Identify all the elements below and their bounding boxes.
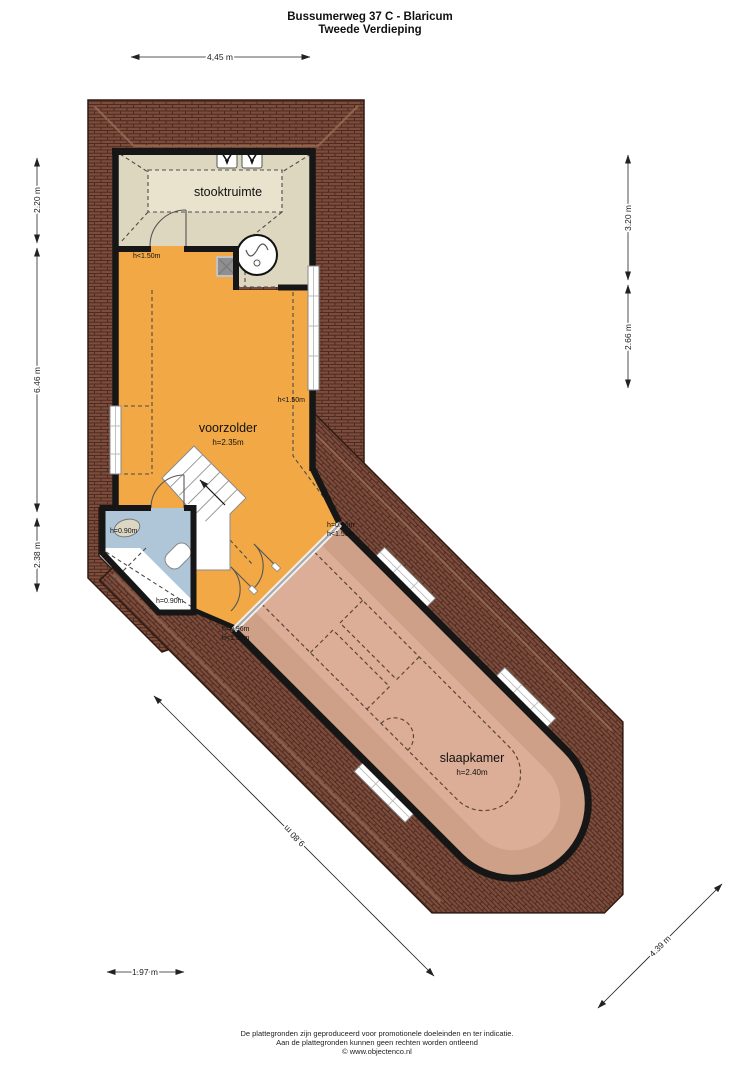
- footer-disclaimer-2: Aan de plattegronden kunnen geen rechten…: [276, 1038, 478, 1047]
- dimension-left-lower: 2.38 m: [32, 518, 42, 592]
- svg-text:9.80 m: 9.80 m: [281, 823, 306, 848]
- floorplan-svg: Bussumerweg 37 C - Blaricum Tweede Verdi…: [0, 0, 754, 1066]
- slaapkamer-height: h=2.40m: [456, 768, 488, 777]
- svg-text:1.97 m: 1.97 m: [132, 967, 158, 977]
- height-label: h=0.96m: [222, 626, 250, 633]
- svg-text:3.20 m: 3.20 m: [623, 205, 633, 231]
- boiler-icon: [237, 235, 277, 275]
- svg-text:4.39 m: 4.39 m: [647, 933, 672, 958]
- dimension-top: 4,45 m: [131, 52, 310, 62]
- skylight-window: [308, 266, 319, 390]
- voorzolder-label: voorzolder: [199, 421, 257, 435]
- dimension-left-middle: 6.46 m: [32, 248, 42, 512]
- height-label: h=0.90m: [110, 528, 138, 535]
- height-label: h=0.96m: [327, 522, 355, 529]
- dimension-bottom-left: 1.97 m: [107, 967, 184, 977]
- height-label: h<1.50m: [278, 397, 306, 404]
- svg-text:2.38 m: 2.38 m: [32, 542, 42, 568]
- skylight-window: [110, 406, 121, 474]
- svg-text:2.20 m: 2.20 m: [32, 187, 42, 213]
- svg-text:6.46 m: 6.46 m: [32, 367, 42, 393]
- footer-disclaimer-1: De plattegronden zijn geproduceerd voor …: [240, 1029, 513, 1038]
- svg-text:2.66 m: 2.66 m: [623, 324, 633, 350]
- slaapkamer-label: slaapkamer: [440, 751, 505, 765]
- height-label: h<1.50m: [327, 531, 355, 538]
- height-label: h=0.90m: [156, 598, 184, 605]
- dimension-diagonal-short: 4.39 m: [598, 884, 722, 1008]
- svg-text:4,45 m: 4,45 m: [207, 52, 233, 62]
- voorzolder-height: h=2.35m: [212, 438, 244, 447]
- dimension-right-upper: 3.20 m: [623, 155, 633, 280]
- footer-copyright: © www.objectenco.nl: [342, 1047, 412, 1056]
- height-label: h<1.50m: [133, 253, 161, 260]
- page-title: Bussumerweg 37 C - Blaricum: [287, 11, 453, 23]
- dimension-right-middle: 2.66 m: [623, 285, 633, 388]
- stookruimte-label: stooktruimte: [194, 185, 262, 199]
- floorplan-page: Bussumerweg 37 C - Blaricum Tweede Verdi…: [0, 0, 754, 1066]
- page-subtitle: Tweede Verdieping: [318, 24, 421, 36]
- dimension-left-upper: 2.20 m: [32, 158, 42, 243]
- height-label: h<1.50m: [222, 635, 250, 642]
